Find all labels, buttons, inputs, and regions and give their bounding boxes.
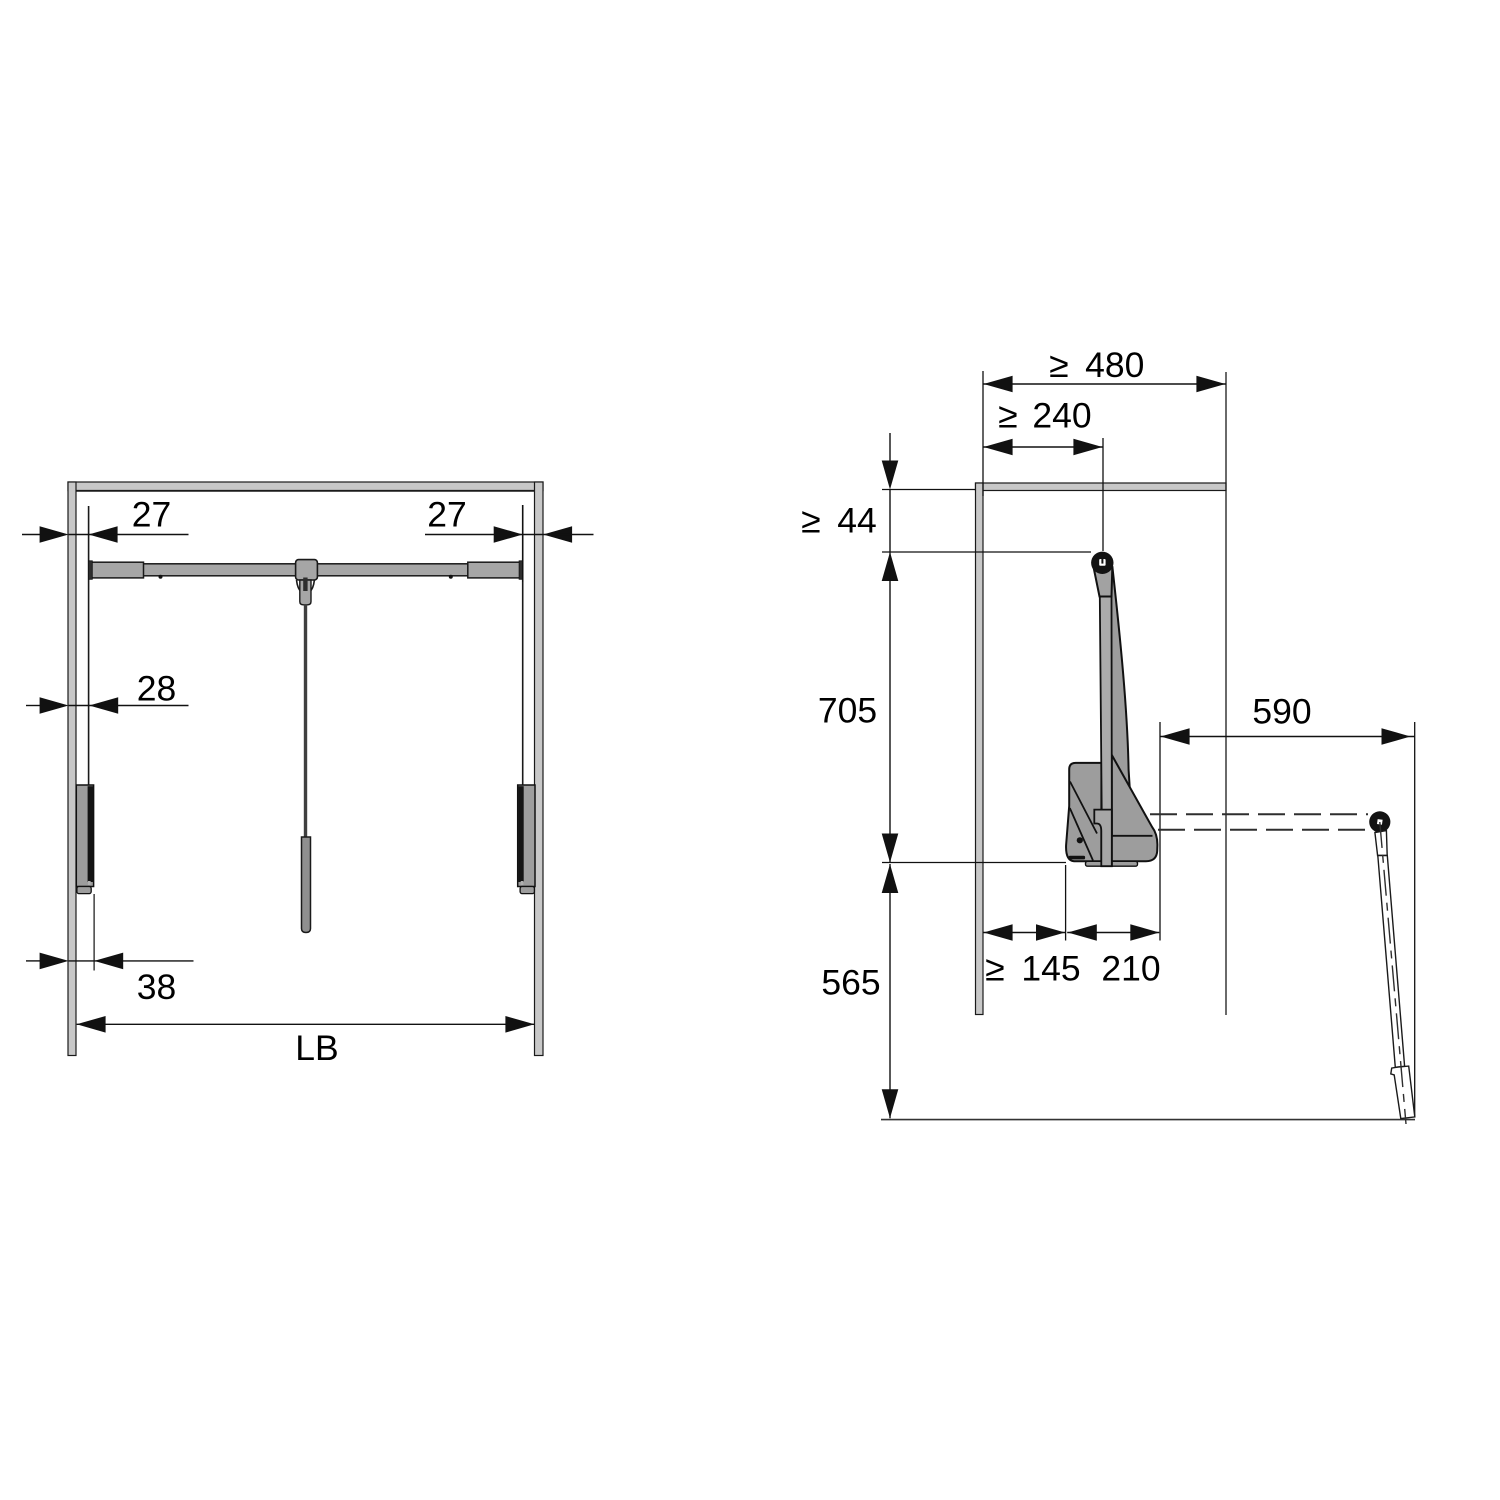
svg-text:28: 28 <box>137 669 177 709</box>
svg-text:LB: LB <box>295 1028 338 1068</box>
svg-text:590: 590 <box>1252 692 1311 732</box>
svg-text:≥: ≥ <box>998 396 1017 436</box>
svg-text:≥: ≥ <box>801 501 820 541</box>
svg-text:≥: ≥ <box>1049 345 1068 385</box>
svg-text:145: 145 <box>1021 949 1080 989</box>
svg-text:≥: ≥ <box>985 949 1004 989</box>
svg-text:44: 44 <box>837 501 877 541</box>
svg-text:210: 210 <box>1101 949 1160 989</box>
svg-text:240: 240 <box>1032 396 1091 436</box>
svg-text:27: 27 <box>132 495 172 535</box>
svg-text:705: 705 <box>818 691 877 731</box>
svg-text:565: 565 <box>821 963 880 1003</box>
svg-text:27: 27 <box>427 495 467 535</box>
svg-text:480: 480 <box>1085 345 1144 385</box>
svg-text:38: 38 <box>137 967 177 1007</box>
